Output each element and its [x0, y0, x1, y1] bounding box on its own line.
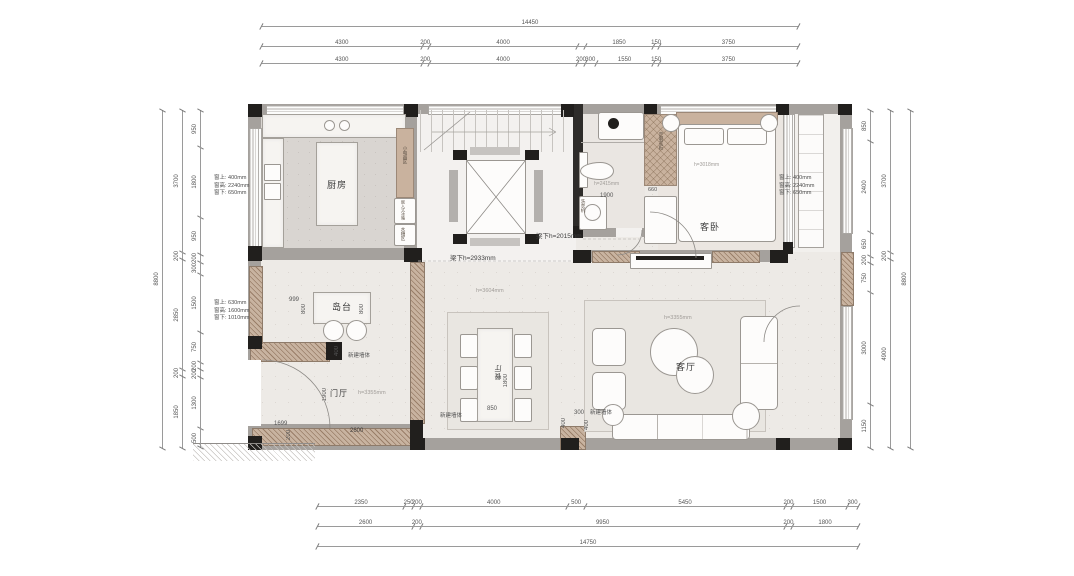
- column: [838, 104, 852, 115]
- window-note-dining: 窗上: 630mm 窗高: 1600mm 窗下: 1010mm: [214, 300, 249, 323]
- dining-chair: [460, 366, 478, 390]
- chaise-lounge: [740, 316, 778, 410]
- dim-segment: 950: [188, 217, 201, 254]
- dim-segment: 1800: [188, 147, 201, 217]
- dim-ext-200: 200: [286, 430, 292, 440]
- dim-segment: 200: [413, 514, 420, 527]
- beam-note: 梁下h=2015mm: [536, 230, 582, 240]
- dim-segment: 3750: [659, 51, 798, 64]
- pillow: [684, 128, 724, 145]
- dim-segment: 200: [170, 369, 183, 377]
- new-wall-label: 新建墙体: [348, 351, 370, 359]
- dim-chain-left-inner: 950180095020030015007502002001300500: [188, 110, 200, 448]
- dim-chain-right-mid: 37002004900: [878, 110, 890, 448]
- wall-kitchen-bottom: [248, 248, 418, 260]
- dim-island: 800: [301, 304, 307, 314]
- elevator-cab: [466, 160, 526, 234]
- wall-tv-hatch-right: [712, 251, 760, 263]
- bath-door-opening: [616, 228, 642, 237]
- kitchen-label: 厨房: [316, 178, 358, 191]
- kitchen-sink-basin: [264, 183, 281, 200]
- dim-segment: 500: [188, 428, 201, 448]
- kitchen-sink-basin: [264, 164, 281, 181]
- dim-wall-400: 400: [334, 346, 340, 356]
- dim-segment: 4000: [421, 494, 567, 507]
- shower-head: [608, 118, 619, 129]
- shower-partition: [581, 142, 645, 143]
- dim-segment: 650: [858, 232, 871, 256]
- living-ceiling-height: h=3355mm: [664, 315, 692, 321]
- dim-segment: 950: [188, 110, 201, 147]
- dim-segment: 750: [188, 333, 201, 362]
- dining-chair: [514, 366, 532, 390]
- dining-chair: [514, 334, 532, 358]
- elevator-door: [449, 170, 458, 222]
- dim-chain-right-outer: 8800: [898, 110, 910, 448]
- dim-bath-1900: 1900: [600, 193, 613, 199]
- dim-segment: 1800: [792, 514, 858, 527]
- elevator-door: [534, 170, 543, 222]
- dim-segment: 200: [785, 494, 792, 507]
- dim-foyer-1900: 1900: [322, 388, 328, 401]
- elevator-corner: [453, 234, 467, 244]
- dim-segment: 300: [188, 262, 201, 274]
- dim-segment: 4300: [262, 34, 422, 47]
- dim-segment: 2350: [318, 494, 404, 507]
- dim-chain-bottom-inner: 2350250200400050054502001500300: [318, 494, 858, 506]
- dining-chair: [460, 334, 478, 358]
- foyer-ceiling-height: h=3355mm: [358, 390, 386, 396]
- floor-plan-canvas: 小电器区 嵌入式冰箱 水槽区 厨房 岛台 999 800 800 400 新建墙…: [0, 0, 1074, 576]
- elevator-corner: [453, 150, 467, 160]
- column: [838, 438, 852, 450]
- dim-segment: 300: [585, 51, 596, 64]
- dim-segment: 200: [422, 34, 429, 47]
- washing-machine-drum: [584, 204, 601, 221]
- window-note-line: 窗上: 400mm: [779, 175, 814, 183]
- side-table: [732, 402, 760, 430]
- dim-chain-left-mid: 370020028502001850: [170, 110, 182, 448]
- dim-chain-left-outer: 8800: [150, 110, 162, 448]
- column: [404, 104, 418, 117]
- window-note-line: 窗上: 630mm: [214, 300, 249, 308]
- door-foyer-opening: [248, 360, 261, 426]
- wardrobe-label: 定制衣柜: [658, 132, 664, 150]
- dim-segment: 14450: [262, 14, 798, 27]
- column: [248, 104, 262, 117]
- wall-foyer-divider: [410, 262, 425, 424]
- dining-ceiling-height: h=3604mm: [476, 288, 504, 294]
- column: [248, 246, 262, 261]
- elevator-door: [470, 238, 520, 246]
- new-wall-label: 新建墙体: [440, 411, 462, 419]
- fridge-label: 嵌入式冰箱: [400, 200, 406, 220]
- dim-segment: 9950: [421, 514, 785, 527]
- dim-segment: 200: [413, 494, 420, 507]
- column: [561, 438, 579, 450]
- dim-segment: 14750: [318, 534, 858, 547]
- dim-segment: 1850: [585, 34, 654, 47]
- column: [573, 250, 591, 263]
- dim-segment: 1500: [792, 494, 847, 507]
- dim-segment: 8800: [150, 110, 163, 448]
- column: [776, 438, 790, 450]
- bedroom-label: 客卧: [700, 220, 720, 233]
- dim-segment: 1500: [188, 274, 201, 333]
- dim-segment: 200: [878, 252, 891, 260]
- dim-chain-bottom-mid: 260020099502001800: [318, 514, 858, 526]
- dim-segment: 200: [188, 255, 201, 263]
- dim-segment: 4900: [878, 260, 891, 448]
- armchair: [592, 328, 626, 366]
- window-note-line: 窗上: 400mm: [214, 175, 249, 183]
- staircase: [420, 110, 570, 152]
- dim-segment: 1850: [170, 377, 183, 448]
- cooktop-burner: [324, 120, 335, 131]
- wardrobe-lower-cabinet: [644, 196, 677, 244]
- window-note-kitchen: 窗上: 400mm 窗高: 2240mm 窗下: 650mm: [214, 175, 249, 198]
- dim-segment: 2600: [318, 514, 413, 527]
- dim-segment: 200: [170, 252, 183, 260]
- dim-segment: 500: [567, 494, 585, 507]
- dim-segment: 200: [188, 370, 201, 378]
- column: [410, 438, 425, 450]
- dim-island: 800: [359, 304, 365, 314]
- dim-wall-2600: 2600: [350, 428, 363, 434]
- toilet-bowl: [580, 162, 614, 180]
- pillow: [727, 128, 767, 145]
- new-wall-label: 新建墙体: [590, 408, 612, 416]
- dim-chain-top-total: 14450: [262, 14, 798, 26]
- window-dining-left-bay: [249, 266, 263, 344]
- dim-segment: 4000: [429, 34, 577, 47]
- dim-segment: 4300: [262, 51, 422, 64]
- dim-segment: 850: [858, 110, 871, 142]
- dim-living-400: 400: [561, 418, 567, 428]
- column: [404, 248, 422, 262]
- washer-label: 洗衣机: [580, 199, 586, 213]
- dim-chain-top-inner: 4300200400020030015501503750: [262, 51, 798, 63]
- sink-zone-label: 水槽区: [400, 227, 406, 241]
- window-living-right: [842, 306, 853, 420]
- dim-chain-right-inner: 850240065020075030001150: [858, 110, 870, 448]
- window-note-bedroom: 窗上: 400mm 窗高: 2240mm 窗下: 650mm: [779, 175, 814, 198]
- dim-living-400: 400: [584, 420, 590, 430]
- dim-segment: 2850: [170, 260, 183, 369]
- dim-segment: 300: [847, 494, 858, 507]
- dim-segment: 750: [858, 264, 871, 292]
- dim-segment: 3750: [659, 34, 798, 47]
- dim-segment: 1150: [858, 405, 871, 448]
- dim-wardrobe-660: 660: [648, 187, 657, 193]
- dim-segment: 3000: [858, 292, 871, 405]
- column: [783, 242, 793, 254]
- dim-segment: [577, 34, 584, 47]
- dim-segment: 200: [422, 51, 429, 64]
- dim-segment: 3700: [170, 110, 183, 252]
- dim-segment: 200: [858, 256, 871, 264]
- shower-tray: [598, 112, 644, 140]
- tv: [636, 256, 704, 260]
- bar-stool: [346, 320, 367, 341]
- bedroom-ceiling-height: h=3018mm: [694, 162, 719, 168]
- window-note-line: 窗下: 1010mm: [214, 315, 249, 323]
- bath-ceiling-height: h=2415mm: [594, 181, 619, 187]
- dim-chain-bottom-total: 14750: [318, 534, 858, 546]
- cooktop-burner: [339, 120, 350, 131]
- dim-ext-1699: 1699: [274, 421, 287, 427]
- foyer-label: 门厅: [330, 388, 348, 399]
- dim-segment: 4000: [429, 51, 577, 64]
- dim-segment: 3700: [878, 110, 891, 252]
- window-note-line: 窗下: 650mm: [779, 190, 814, 198]
- window-balcony-right: [842, 128, 853, 234]
- window-kitchen-left: [249, 128, 262, 248]
- nightstand: [760, 114, 778, 132]
- nightstand: [662, 114, 680, 132]
- bar-stool: [323, 320, 344, 341]
- dim-segment: 8800: [898, 110, 911, 448]
- living-label: 客厅: [676, 360, 696, 373]
- dining-chair: [514, 398, 532, 422]
- dim-segment: 1300: [188, 378, 201, 429]
- elevator-door: [470, 147, 520, 155]
- dim-table-850: 850: [487, 406, 497, 412]
- column: [248, 336, 262, 349]
- dim-segment: 1550: [596, 51, 654, 64]
- dim-living-300: 300: [574, 410, 584, 416]
- dim-segment: 200: [785, 514, 792, 527]
- wall-living-right-hatch: [841, 252, 854, 306]
- window-note-line: 窗高: 2240mm: [214, 183, 249, 191]
- elevator-corner: [525, 150, 539, 160]
- dim-chain-top-mid: 4300200400018501503750: [262, 34, 798, 46]
- window-note-line: 窗高: 1600mm: [214, 308, 249, 316]
- beam-note: 梁下h=2933mm: [450, 252, 496, 262]
- ground-hatch: [193, 443, 315, 461]
- dim-segment: 2400: [858, 142, 871, 232]
- window-note-line: 窗高: 2240mm: [779, 183, 814, 191]
- dim-segment: 200: [577, 51, 584, 64]
- dim-segment: 5450: [585, 494, 785, 507]
- wall-foyer-return: [250, 342, 330, 362]
- dining-chair: [460, 398, 478, 422]
- dim-island: 999: [289, 297, 299, 303]
- dim-table-1800: 1800: [503, 374, 509, 387]
- sofa: [612, 414, 750, 440]
- appliance-zone-label: 小电器区: [402, 146, 408, 164]
- window-note-line: 窗下: 650mm: [214, 190, 249, 198]
